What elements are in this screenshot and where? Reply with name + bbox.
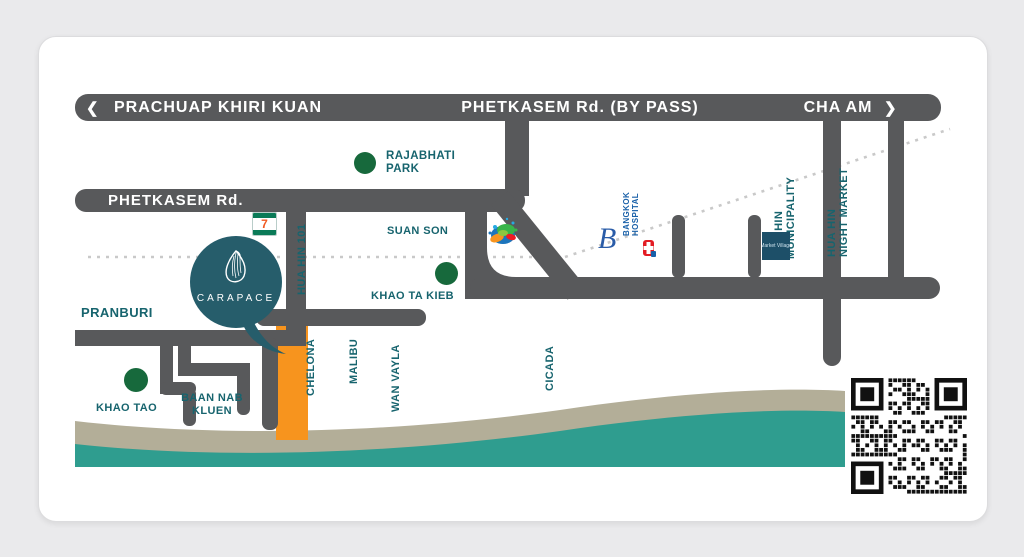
seven-eleven-7: 7 bbox=[253, 218, 276, 230]
hua-hin-night-market-label: HUA HIN NIGHT MARKET bbox=[826, 168, 850, 257]
rajabhati-park-label: RAJABHATI PARK bbox=[386, 150, 476, 176]
chevron-right-icon: ❯ bbox=[884, 99, 897, 117]
bypass-label-center: PHETKASEM Rd. (BY PASS) bbox=[455, 99, 705, 117]
bypass-label-left: PRACHUAP KHIRI KUAN bbox=[114, 99, 322, 117]
chevron-left-icon: ❮ bbox=[86, 99, 99, 117]
hua-hin-101-label: HUA HIN 101 bbox=[296, 224, 308, 295]
khao-tao-dot bbox=[124, 368, 148, 392]
script-b-landmark-logo: B bbox=[598, 224, 616, 254]
khao-tao-label: KHAO TAO bbox=[96, 402, 157, 415]
pranburi-label: PRANBURI bbox=[81, 306, 153, 319]
night-market-road bbox=[888, 108, 904, 290]
carapace-shell-icon bbox=[219, 248, 253, 288]
malibu-label: MALIBU bbox=[348, 339, 360, 384]
water-park-splash-icon bbox=[483, 213, 523, 253]
khao-ta-kieb-road bbox=[256, 309, 426, 326]
chelona-label: CHELONA bbox=[305, 339, 317, 396]
market-village-logo: Market Village bbox=[762, 232, 790, 260]
bangkok-hospital-label: BANGKOK HOSPITAL bbox=[622, 192, 640, 236]
qr-code bbox=[851, 378, 967, 494]
coast-road bbox=[470, 277, 940, 299]
location-map: CARAPACE ❮ PRACHUAP KHIRI KUAN PHETKASEM… bbox=[0, 0, 1024, 557]
suan-son-label: SUAN SON bbox=[387, 225, 448, 238]
phetkasem-road-label: PHETKASEM Rd. bbox=[108, 192, 244, 209]
carapace-wordmark: CARAPACE bbox=[190, 293, 282, 304]
wan-vayla-label: WAN VAYLA bbox=[390, 344, 402, 412]
khao-ta-kieb-label: KHAO TA KIEB bbox=[371, 290, 454, 303]
carapace-pin bbox=[190, 236, 282, 328]
bypass-label-right: CHA AM bbox=[798, 99, 878, 117]
rajabhati-park-dot bbox=[354, 152, 376, 174]
khao-ta-kieb-dot bbox=[435, 262, 458, 285]
bangkok-hospital-icon bbox=[642, 239, 657, 259]
baan-nab-kluen-label: BAAN NAB KLUEN bbox=[180, 392, 244, 418]
seven-eleven-icon: 7 bbox=[252, 212, 277, 236]
cicada-label: CICADA bbox=[544, 346, 556, 391]
